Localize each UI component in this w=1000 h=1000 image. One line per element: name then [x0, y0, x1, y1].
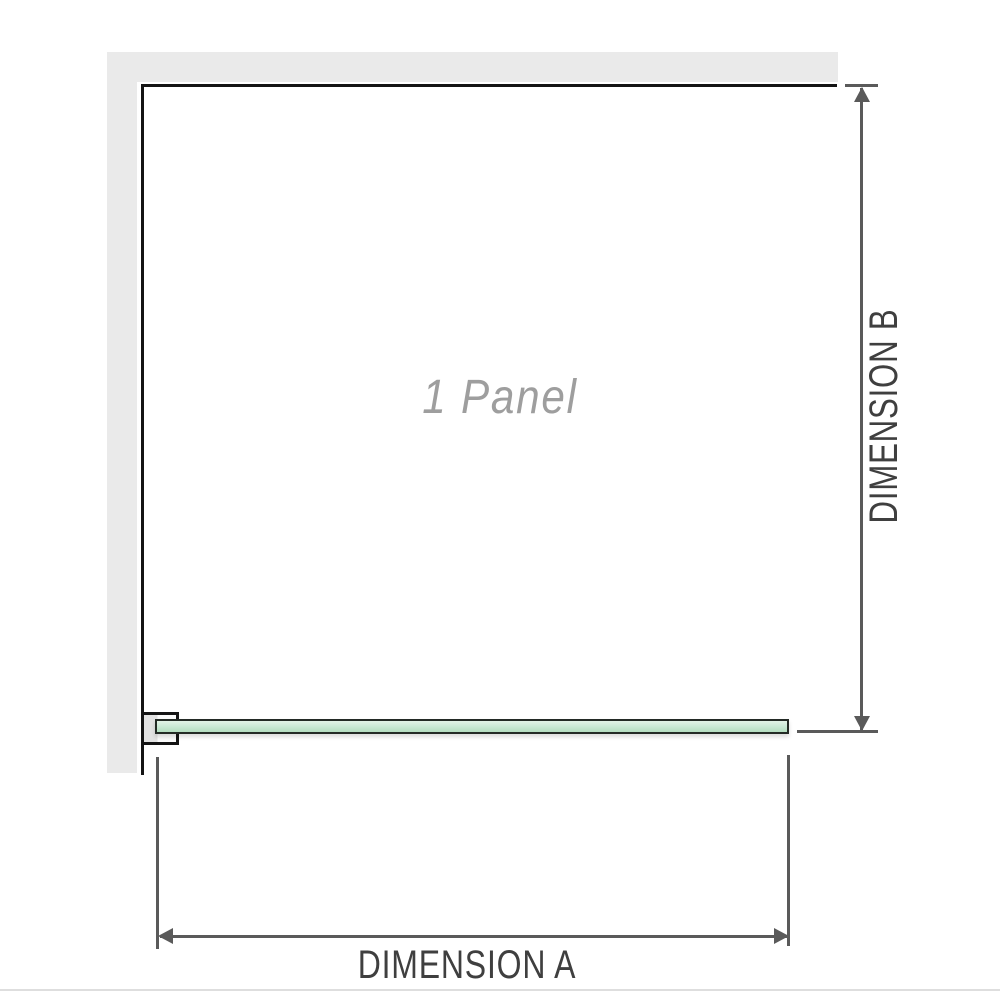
dimension-a-tick-right	[787, 755, 790, 946]
enclosure-left-line	[141, 84, 144, 775]
dimension-b-label: DIMENSION B	[864, 291, 904, 541]
glass-panel	[155, 719, 789, 734]
arrow-down-icon	[854, 716, 870, 731]
arrow-right-icon	[774, 928, 789, 944]
wall-top	[107, 52, 838, 82]
dimension-a-tick-left	[156, 757, 159, 949]
panel-label: 1 Panel	[324, 369, 676, 425]
wall-left	[107, 52, 137, 773]
footer-divider	[0, 989, 1000, 991]
enclosure-top-line	[141, 84, 837, 87]
arrow-left-icon	[158, 928, 173, 944]
diagram-canvas: 1 Panel DIMENSION B DIMENSION A	[0, 0, 1000, 1000]
arrow-up-icon	[854, 87, 870, 102]
dimension-a-line	[160, 935, 787, 938]
dimension-a-label: DIMENSION A	[307, 944, 627, 986]
